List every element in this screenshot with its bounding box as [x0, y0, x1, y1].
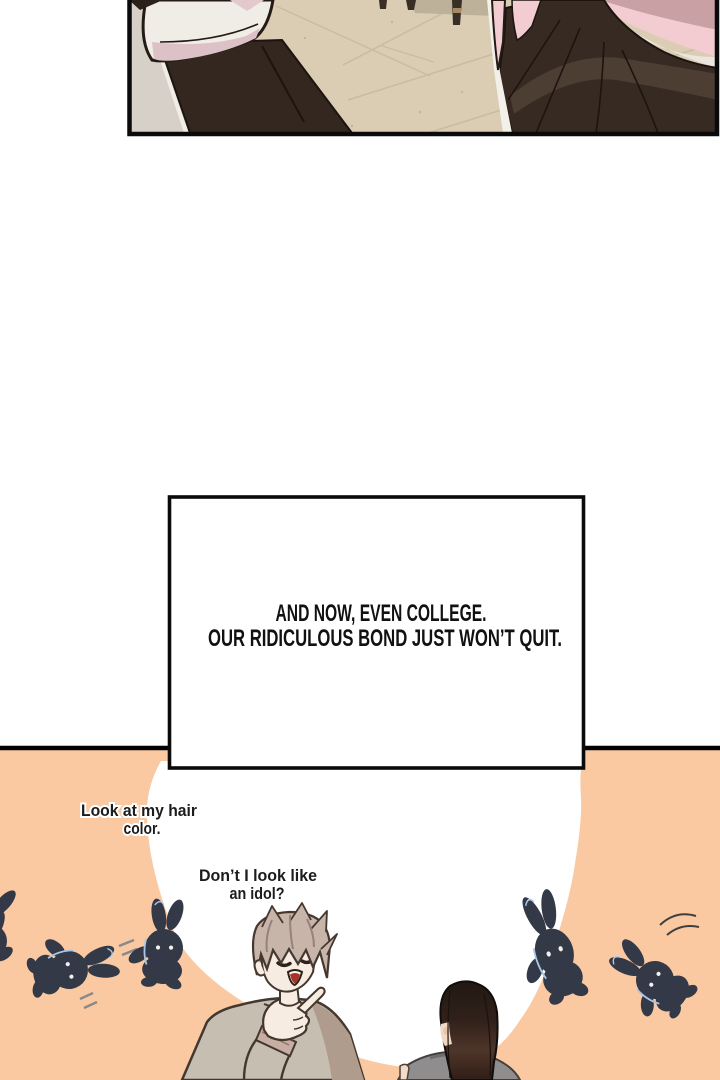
svg-text:AND NOW, EVEN COLLEGE.: AND NOW, EVEN COLLEGE.: [276, 600, 487, 627]
svg-text:Look at my hair: Look at my hair: [81, 802, 198, 820]
svg-text:OUR RIDICULOUS BOND JUST WON’T: OUR RIDICULOUS BOND JUST WON’T QUIT.: [208, 625, 562, 652]
svg-text:an idol?: an idol?: [230, 885, 285, 903]
svg-text:color.: color.: [124, 820, 161, 838]
svg-text:Don’t I look like: Don’t I look like: [199, 867, 317, 885]
